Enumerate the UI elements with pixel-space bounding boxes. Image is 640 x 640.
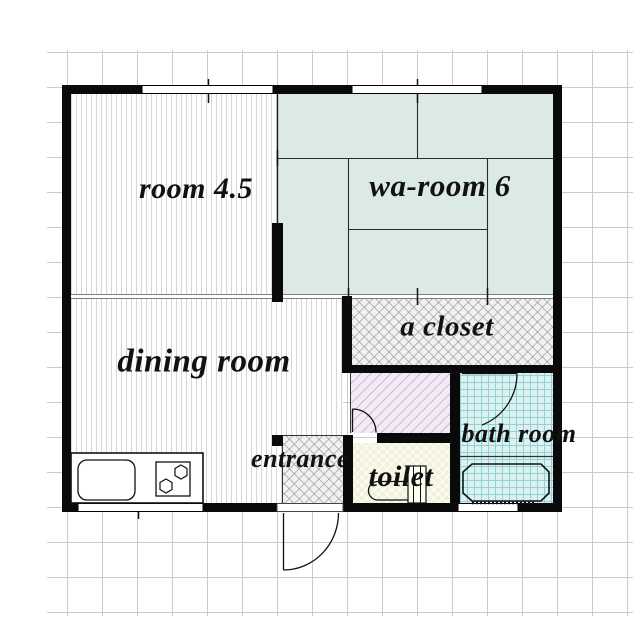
bathtub-outline <box>463 464 549 501</box>
window-kitchen <box>78 504 203 512</box>
dining-room-label: dining room <box>117 344 290 381</box>
stove-burner-2 <box>175 465 187 479</box>
bathtub <box>463 464 549 503</box>
bath-room-label: bath room <box>461 419 576 449</box>
hallway-door-swing <box>353 409 377 433</box>
room-4-5-label: room 4.5 <box>139 172 253 206</box>
kitchen-unit <box>71 453 203 503</box>
entrance-label: entrance <box>251 444 349 474</box>
window-bath <box>458 504 518 512</box>
entrance-door-swing <box>284 513 339 570</box>
window-top-left <box>142 86 273 94</box>
toilet-label: toilet <box>369 460 434 494</box>
kitchen-sink <box>78 460 135 500</box>
window-top-right <box>352 86 482 94</box>
wa-room-label: wa-room 6 <box>369 168 510 204</box>
stove-burner-1 <box>160 479 172 493</box>
bath-door-swing <box>462 374 517 426</box>
floorplan-canvas: room 4.5 wa-room 6 dining room a closet … <box>0 0 640 640</box>
entrance-threshold <box>277 504 343 512</box>
linework-layer <box>0 0 640 640</box>
closet-label: a closet <box>400 311 493 344</box>
